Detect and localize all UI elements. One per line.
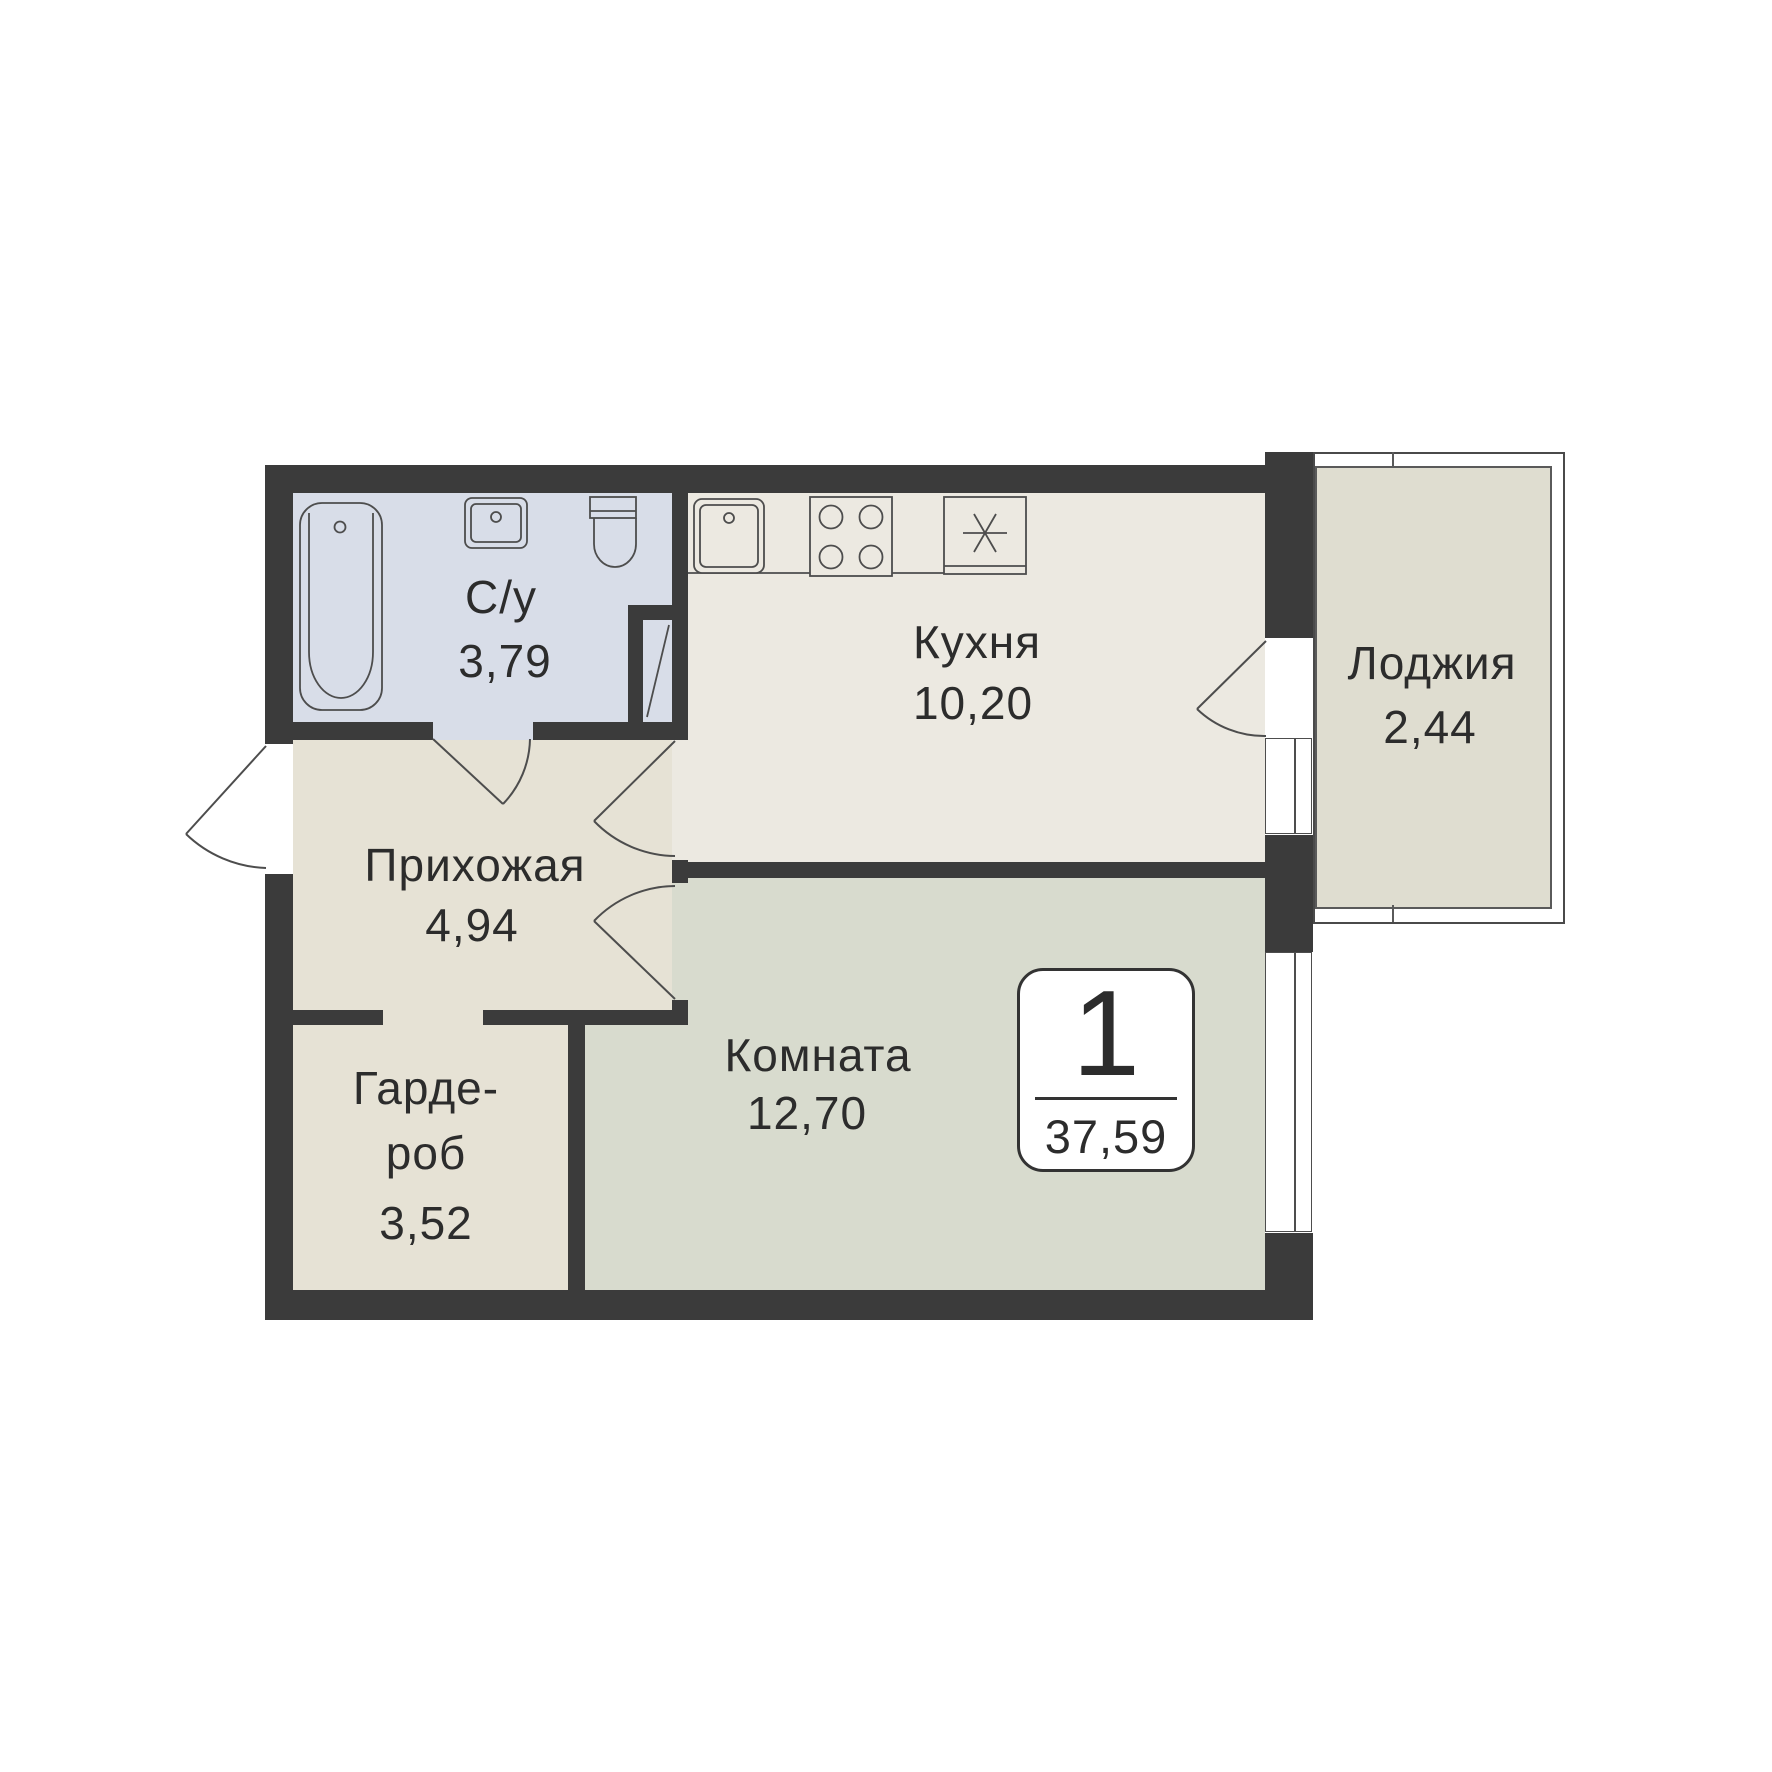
wardrobe-label-line2: роб — [276, 1126, 576, 1181]
kitchen-label: Кухня — [827, 615, 1127, 670]
floor-plan: С/у 3,79 Кухня 10,20 Лоджия 2,44 Прихожа… — [0, 0, 1772, 1772]
badge-room-count: 1 — [1072, 971, 1140, 1095]
kitchen-sink-icon — [694, 499, 764, 573]
hallway-area: 4,94 — [302, 898, 642, 953]
plan-linework — [0, 0, 1772, 1772]
toilet-icon — [590, 497, 636, 567]
entry-door — [186, 746, 266, 868]
stove-icon — [810, 497, 892, 576]
apartment-badge: 1 37,59 — [1017, 968, 1195, 1172]
badge-divider — [1035, 1097, 1177, 1100]
bathroom-area: 3,79 — [355, 634, 655, 689]
loggia-area: 2,44 — [1280, 700, 1580, 755]
room-area: 12,70 — [627, 1086, 987, 1141]
loggia-door — [1197, 641, 1266, 736]
bath-sink-icon — [465, 498, 527, 548]
hallway-label: Прихожая — [305, 838, 645, 893]
fridge-icon — [944, 497, 1026, 574]
kitchen-area: 10,20 — [823, 676, 1123, 731]
bathroom-door — [433, 739, 530, 804]
loggia-label: Лоджия — [1282, 636, 1582, 691]
room-label: Комната — [638, 1028, 998, 1083]
badge-total-area: 37,59 — [1045, 1109, 1168, 1164]
wardrobe-label-line1: Гарде- — [276, 1061, 576, 1116]
bathroom-label: С/у — [351, 570, 651, 625]
wardrobe-area: 3,52 — [276, 1196, 576, 1251]
